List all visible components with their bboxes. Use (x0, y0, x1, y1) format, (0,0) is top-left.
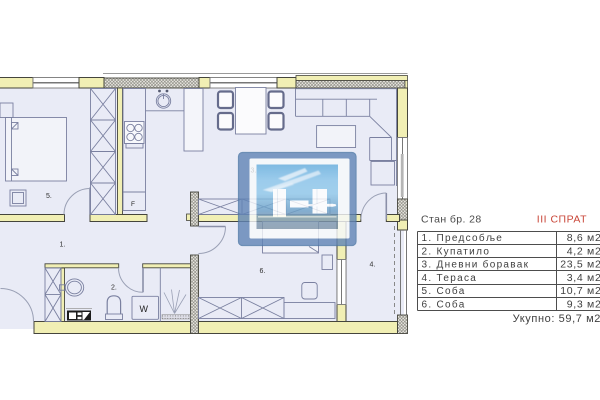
svg-text:6. Соба: 6. Соба (422, 299, 466, 311)
svg-text:5.: 5. (46, 193, 52, 200)
svg-text:5. Соба: 5. Соба (422, 285, 466, 297)
svg-text:10,7 м2: 10,7 м2 (560, 285, 600, 297)
svg-text:III СПРАТ: III СПРАТ (537, 214, 587, 226)
svg-text:4,2 м2: 4,2 м2 (567, 245, 600, 257)
svg-text:4. Тераса: 4. Тераса (422, 273, 478, 284)
svg-text:W: W (140, 304, 149, 314)
svg-text:Укупно: 59,7 м2: Укупно: 59,7 м2 (513, 313, 600, 325)
svg-text:1. Предсобље: 1. Предсобље (422, 232, 504, 244)
svg-text:2.: 2. (111, 285, 117, 292)
svg-text:1.: 1. (60, 242, 66, 249)
svg-text:Стан бр. 28: Стан бр. 28 (421, 214, 482, 226)
svg-text:23,5 м2: 23,5 м2 (560, 259, 600, 271)
svg-text:F: F (131, 201, 135, 208)
svg-text:9,3 м2: 9,3 м2 (567, 299, 600, 311)
svg-text:8,6 м2: 8,6 м2 (567, 232, 600, 244)
svg-text:6.: 6. (260, 268, 266, 275)
svg-text:3,4 м2: 3,4 м2 (567, 272, 600, 284)
svg-text:2. Купатило: 2. Купатило (422, 246, 491, 257)
svg-text:4.: 4. (370, 262, 376, 269)
svg-text:3. Дневни боравак: 3. Дневни боравак (422, 259, 530, 271)
